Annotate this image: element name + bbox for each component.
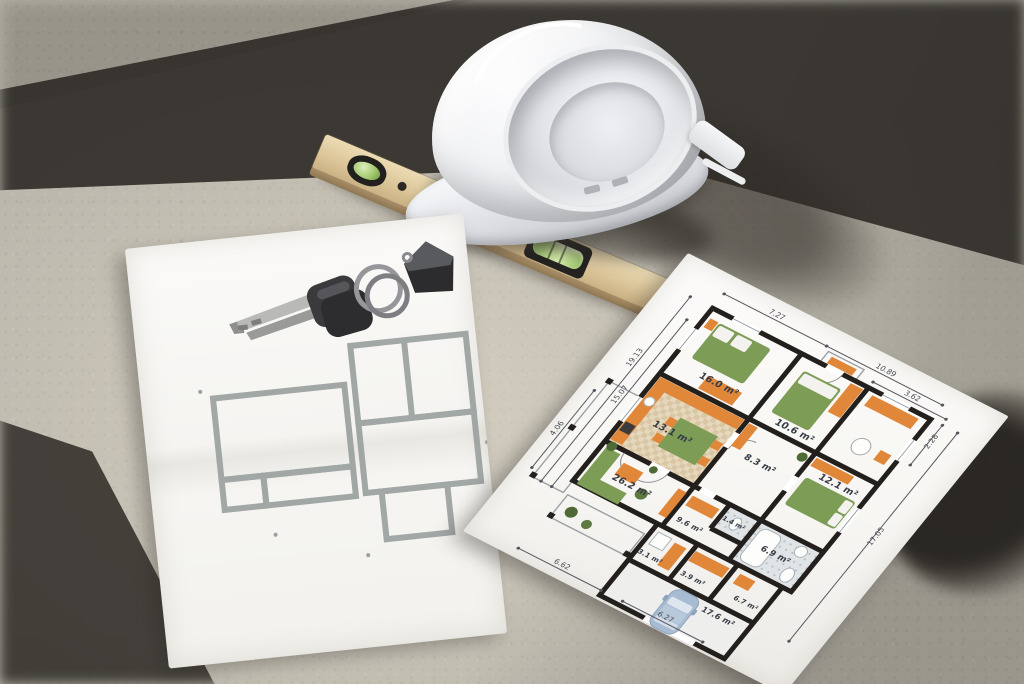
dim-label: 2.28 <box>922 433 941 450</box>
sketch-paper <box>125 213 507 668</box>
dim-label: 17.05 <box>865 526 887 547</box>
dim-label: 6.62 <box>552 557 573 572</box>
dim-label: 3.62 <box>902 389 923 404</box>
room-area-label: 6.7 m² <box>731 593 760 612</box>
blueprint-paper: 16.0 m² 10.6 m² 13.1 m² 8.3 m² 12.1 m² 6… <box>463 253 1009 684</box>
house-keychain-icon <box>402 239 457 296</box>
vial-glass-round <box>351 158 383 184</box>
floor-plan-drawing: 16.0 m² 10.6 m² 13.1 m² 8.3 m² 12.1 m² 6… <box>463 253 1009 684</box>
dim-label: 7.27 <box>767 307 788 322</box>
dim-label: 19.13 <box>624 347 646 368</box>
room-area-label: 8.3 m² <box>741 453 777 476</box>
keys <box>223 239 461 350</box>
level-screw-hole <box>396 180 408 192</box>
sketch-plan-drawing <box>125 213 507 668</box>
construction-photo: 16.0 m² 10.6 m² 13.1 m² 8.3 m² 12.1 m² 6… <box>0 0 1024 684</box>
sketch-walls <box>209 334 486 556</box>
